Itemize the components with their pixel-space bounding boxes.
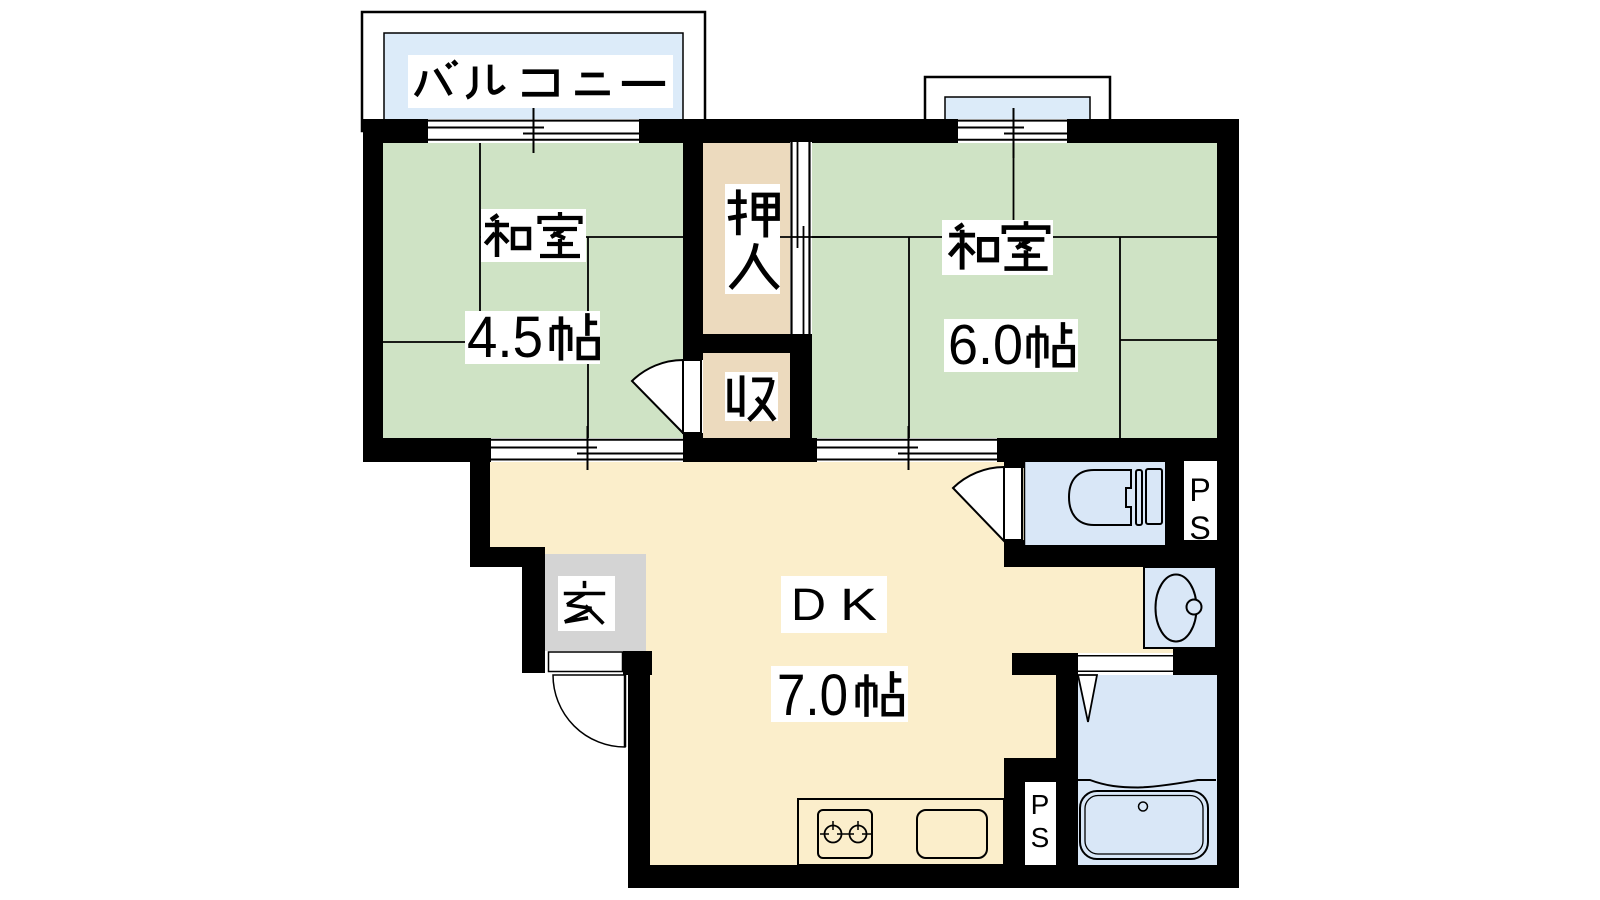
svg-text:4.5: 4.5: [467, 305, 543, 370]
svg-text:P: P: [1189, 472, 1210, 508]
svg-text:D: D: [791, 579, 826, 630]
svg-text:K: K: [840, 579, 877, 630]
svg-text:6.0: 6.0: [948, 313, 1023, 377]
svg-text:P: P: [1031, 789, 1050, 820]
svg-text:S: S: [1031, 822, 1050, 853]
svg-text:S: S: [1189, 510, 1210, 546]
svg-text:7.0: 7.0: [777, 663, 848, 728]
